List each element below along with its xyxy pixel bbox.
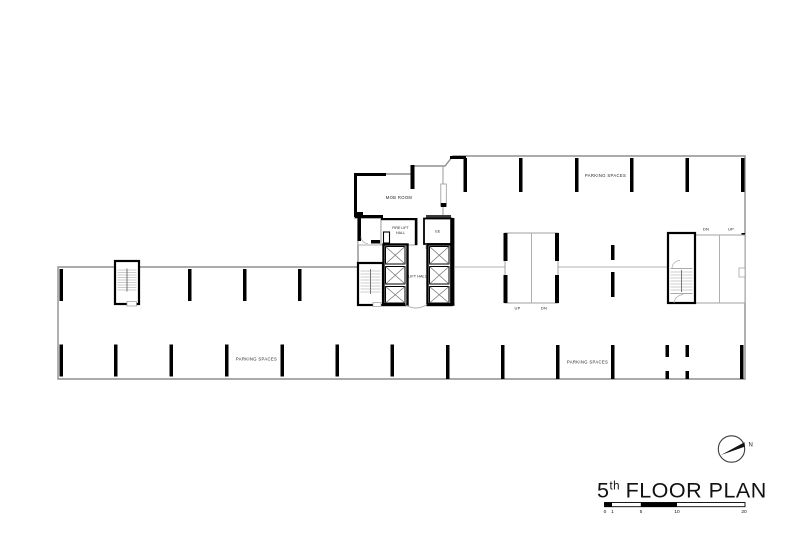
mob-room-shaft <box>441 184 447 206</box>
mob-room-bottom-wall <box>355 215 383 218</box>
north-arrow-circle <box>718 436 744 462</box>
right-ramp-dn-label: DN <box>703 227 709 232</box>
lift-hall-label: LIFT HALL <box>408 274 428 279</box>
stair-east <box>668 233 695 303</box>
mob-room-shaft-damper <box>441 203 447 207</box>
north-arrow: N <box>718 436 753 462</box>
mob-room-left-wall <box>354 173 357 217</box>
fire-lift-hall-label-2: HALL <box>396 231 405 235</box>
right-wall-door <box>739 268 745 277</box>
mob-room-label: MOB ROOM <box>386 195 413 200</box>
north-arrow-needle <box>721 442 745 455</box>
jog-wall <box>411 165 415 189</box>
parking-label-bottom-left: PARKING SPACES <box>236 357 277 362</box>
parking-label-top: PARKING SPACES <box>585 173 626 178</box>
scale-tick-1: 1 <box>611 509 614 515</box>
parking-label-bottom-right: PARKING SPACES <box>567 360 608 365</box>
center-ramp-up-label: UP <box>515 306 521 311</box>
scale-bar: 0 1 5 10 20 <box>604 503 747 516</box>
stair-west <box>115 261 139 306</box>
right-ramp: DN UP <box>695 227 745 304</box>
mob-room-top-wall <box>354 173 386 176</box>
stair-core <box>358 263 383 307</box>
stair-west-door <box>127 302 137 307</box>
scale-tick-20: 20 <box>741 509 747 515</box>
core-right-wall <box>450 218 454 305</box>
ee-room-label: EE <box>435 230 440 234</box>
right-ramp-up-label: UP <box>728 227 734 232</box>
lift-bank-left <box>384 245 408 306</box>
scale-tick-5: 5 <box>640 509 643 515</box>
center-ramp: UP DN <box>504 233 560 311</box>
floor-plan-canvas: UP DN DN UP MOB ROOM FIRE LIFT HALL <box>0 0 800 533</box>
center-ramp-dn-label: DN <box>541 306 547 311</box>
fire-lift-shaft <box>384 232 390 243</box>
north-label: N <box>749 443 753 449</box>
title-block: 5thFLOOR PLAN 0 1 5 10 20 <box>597 479 767 516</box>
lift-bank-right <box>428 245 452 306</box>
drawing-sheet: UP DN DN UP MOB ROOM FIRE LIFT HALL <box>0 0 800 533</box>
fire-lift-hall-label-1: FIRE LIFT <box>392 226 409 230</box>
stair-core-door <box>373 303 381 307</box>
scale-tick-0: 0 <box>604 509 607 515</box>
plan-title: 5thFLOOR PLAN <box>597 479 767 503</box>
scale-tick-10: 10 <box>674 509 680 515</box>
